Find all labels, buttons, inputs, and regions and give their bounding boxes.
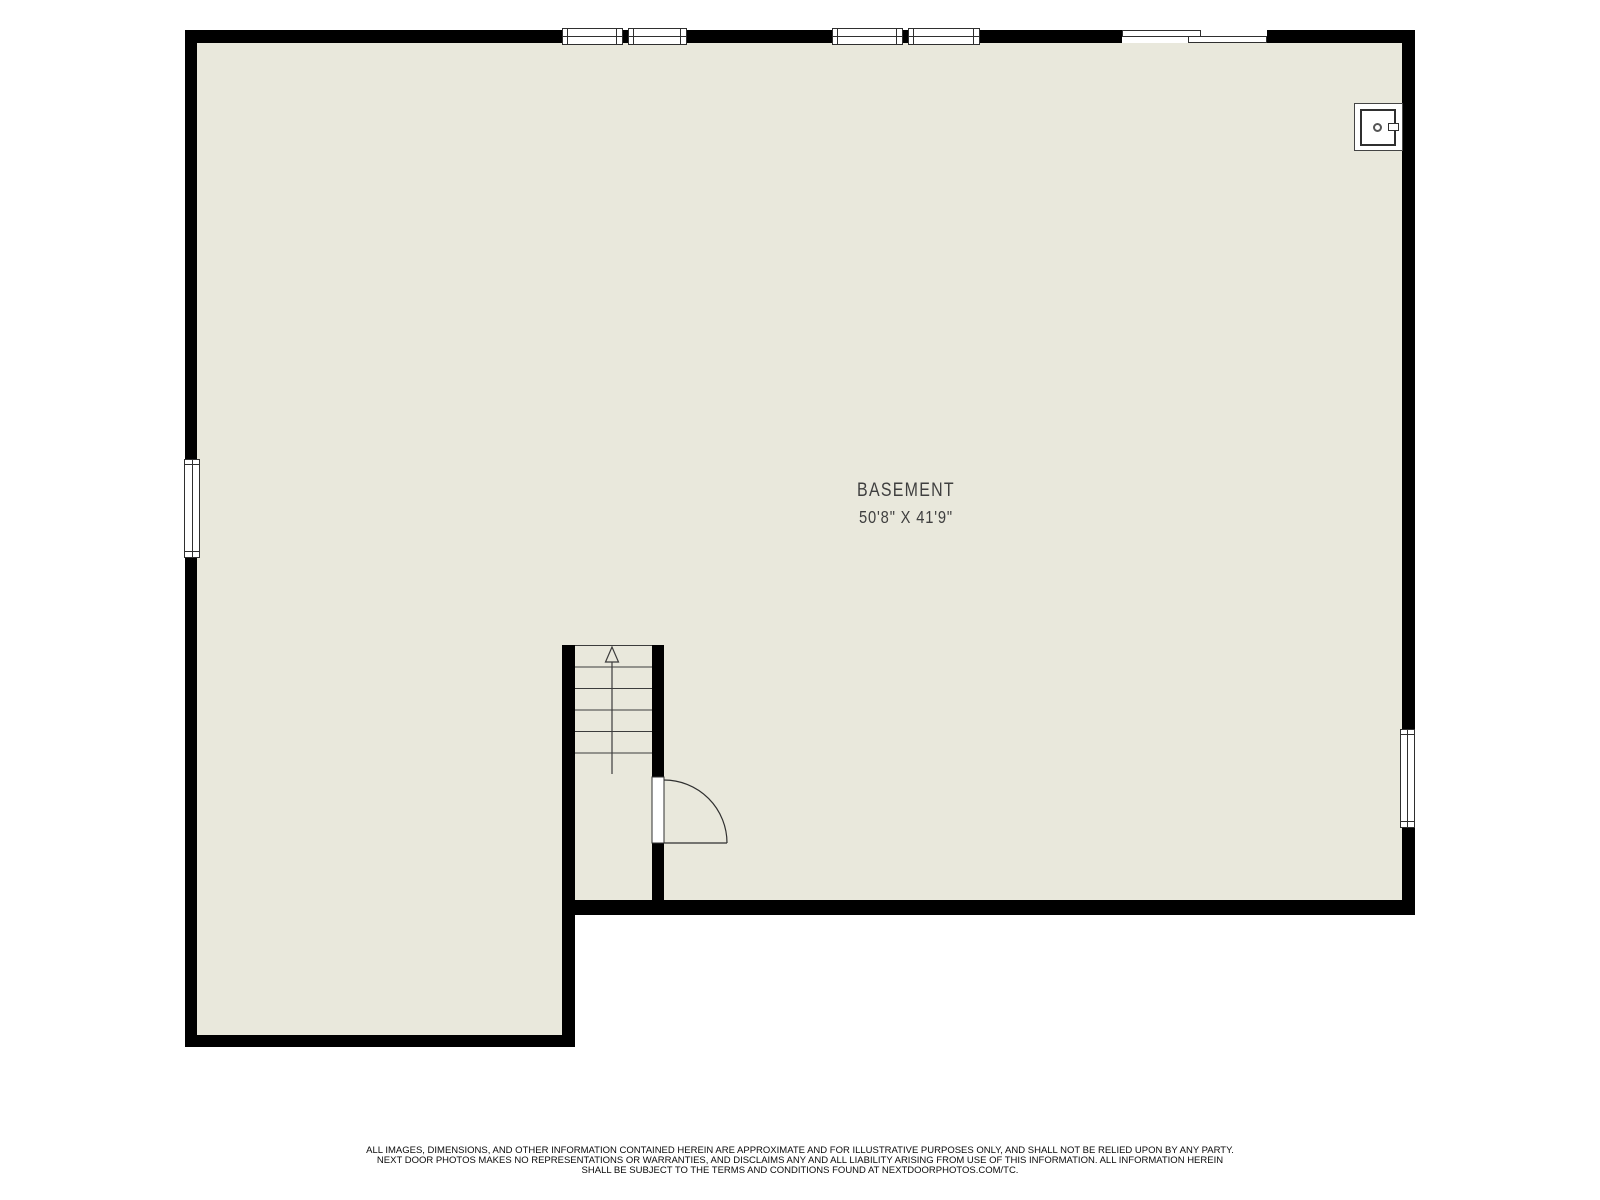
window-icon xyxy=(908,28,980,45)
room-name: BASEMENT xyxy=(780,480,1032,502)
disclaimer: ALL IMAGES, DIMENSIONS, AND OTHER INFORM… xyxy=(0,1146,1600,1177)
room-label: BASEMENT 50'8" X 41'9" xyxy=(780,480,1032,528)
window-icon xyxy=(562,28,623,45)
basement-floor-area xyxy=(197,43,1402,900)
window-icon xyxy=(628,28,687,45)
stairwell-door-icon xyxy=(648,774,738,848)
utility-fixture-knob-icon xyxy=(1373,123,1382,132)
sliding-door-panel-icon xyxy=(1188,36,1267,43)
stairwell-wall-left xyxy=(562,645,575,1047)
utility-fixture-pipe-icon xyxy=(1388,123,1399,131)
window-icon xyxy=(832,28,903,45)
window-icon xyxy=(1400,729,1415,828)
stairs-up-arrow-icon xyxy=(575,645,652,774)
window-icon xyxy=(184,459,200,558)
stairwell-wall-right-lower xyxy=(652,843,664,915)
floor-plan-page: BASEMENT 50'8" X 41'9" ALL IMAGES, DIMEN… xyxy=(0,0,1600,1200)
stairwell-wall-right-upper xyxy=(652,645,664,777)
disclaimer-line: SHALL BE SUBJECT TO THE TERMS AND CONDIT… xyxy=(0,1166,1600,1176)
wall-bottom-extension xyxy=(185,1035,575,1047)
basement-floor-extension-area xyxy=(197,898,562,1035)
room-dimensions: 50'8" X 41'9" xyxy=(780,507,1032,528)
wall-bottom-main xyxy=(562,900,1415,915)
